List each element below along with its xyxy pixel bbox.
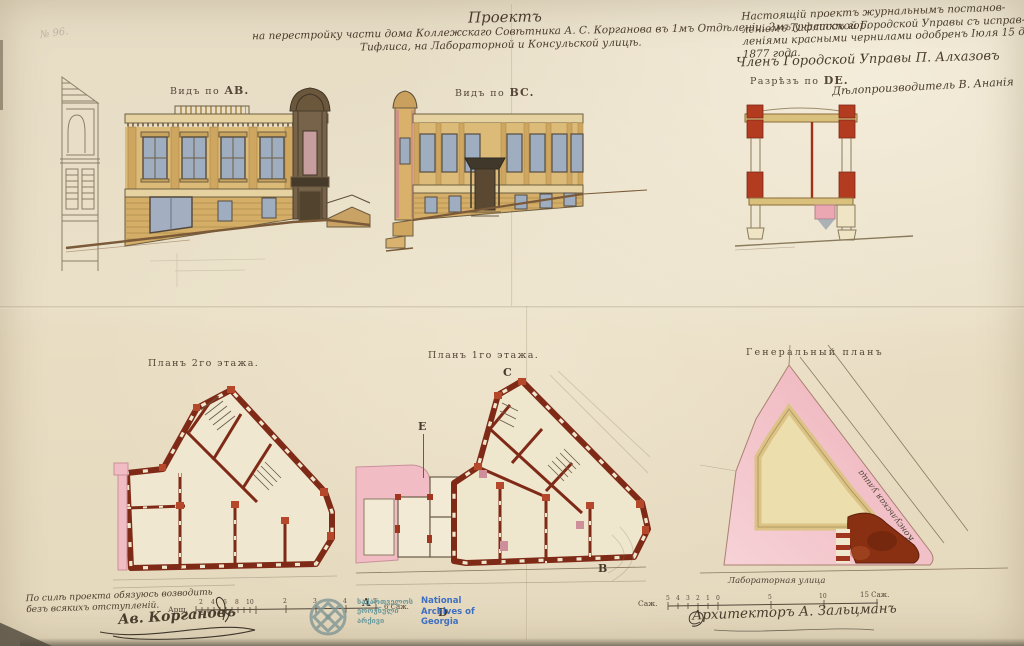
fold-line-horizontal xyxy=(0,306,1024,309)
svg-text:2: 2 xyxy=(283,598,287,605)
street-label-bottom: Лабораторная улица xyxy=(727,575,825,586)
svg-text:10: 10 xyxy=(819,593,827,600)
marker-b: B xyxy=(598,562,607,575)
plan2-outer-walls xyxy=(127,390,332,568)
archive-knot-logo-icon xyxy=(305,594,351,640)
archival-drawing-sheet: № 96. Проектъ на перестройку части дома … xyxy=(0,0,1024,646)
marker-c: C xyxy=(503,366,512,379)
archive-watermark: საქართველოს ეროვნული არქივი National Arc… xyxy=(305,592,480,644)
architect-flourish xyxy=(684,600,884,636)
tower-outline xyxy=(60,77,100,271)
owner-signature-flourish xyxy=(95,592,265,642)
elevation-ab-drawing xyxy=(40,75,370,305)
svg-text:5: 5 xyxy=(666,595,670,602)
svg-text:Саж.: Саж. xyxy=(638,599,658,608)
svg-text:15 Саж.: 15 Саж. xyxy=(860,591,889,599)
site-plan-drawing: Консульская улица Лабораторная улица xyxy=(700,345,1010,605)
svg-text:4: 4 xyxy=(676,595,680,602)
facade-ab xyxy=(66,88,370,252)
pencil-archive-note: № 96. xyxy=(39,26,69,41)
corner-bay-ab xyxy=(290,88,330,221)
pencil-construction-lines xyxy=(150,253,265,287)
plan-2nd-floor-drawing xyxy=(85,352,365,602)
label-section-de: Разрѣзъ по DE. xyxy=(750,74,849,87)
facade-bc xyxy=(386,91,647,251)
title-heading: Проектъ xyxy=(468,7,542,26)
watermark-english-text: National Archives of Georgia xyxy=(421,596,475,628)
section-structure xyxy=(735,105,913,250)
marker-e: E xyxy=(418,420,426,433)
marker-e-line xyxy=(423,434,424,478)
plan2-pink-wall xyxy=(118,471,127,570)
paper-left-edge-mark xyxy=(0,40,3,110)
watermark-georgian-text: საქართველოს ეროვნული არქივი xyxy=(357,597,413,625)
elevation-bc-drawing xyxy=(385,78,650,303)
paper-bottom-edge xyxy=(20,638,1024,646)
section-de-drawing xyxy=(735,88,915,258)
